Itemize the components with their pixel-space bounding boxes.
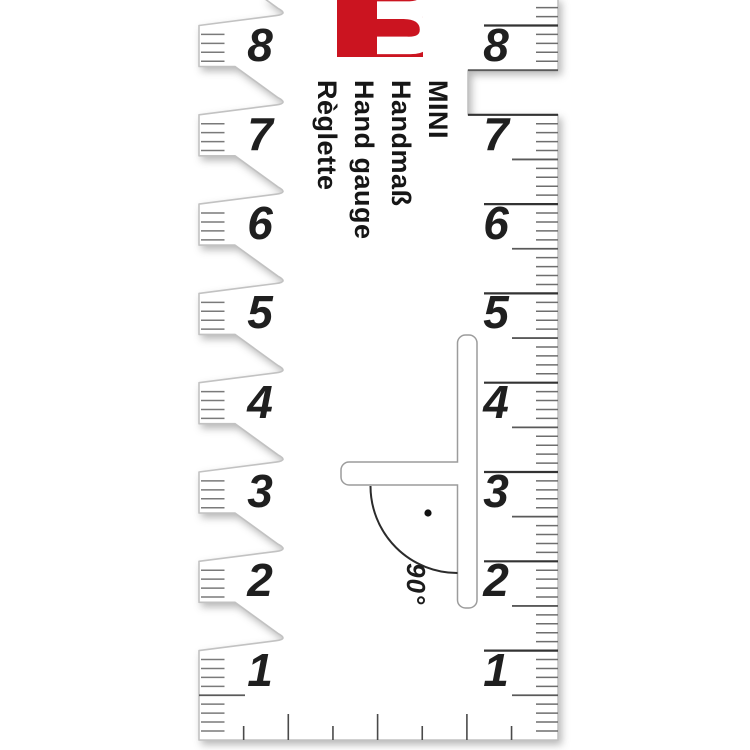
hand-gauge-product-photo: m MINI Handmaß Hand gauge Règlette 90° 8… — [0, 0, 750, 750]
angle-90-label: 90° — [400, 563, 431, 605]
title-line-handmass: Handmaß — [382, 80, 419, 240]
product-title-block: MINI Handmaß Hand gauge Règlette — [308, 80, 456, 240]
title-line-handgauge: Hand gauge — [345, 80, 382, 240]
title-line-mini: MINI — [419, 80, 456, 240]
title-line-reglette: Règlette — [308, 80, 345, 240]
prym-logo: m — [337, 0, 423, 57]
pivot-dot — [424, 509, 431, 516]
prym-logo-letter: m — [361, 0, 423, 57]
